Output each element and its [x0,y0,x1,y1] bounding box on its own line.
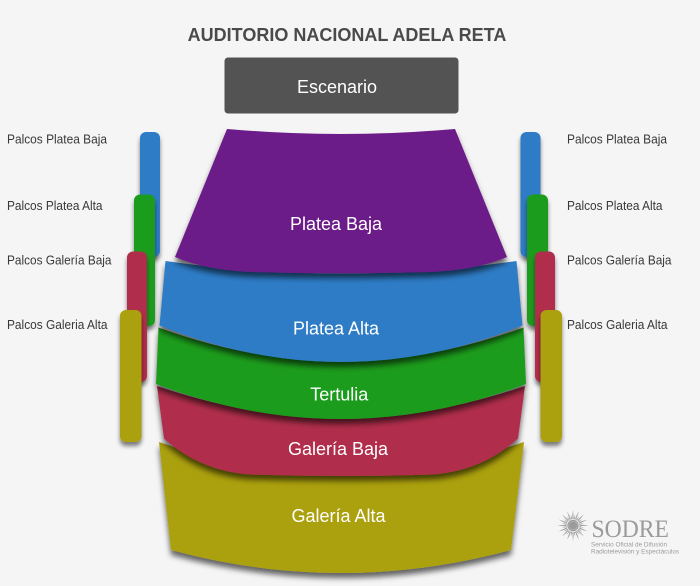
svg-text:AUDITORIO NACIONAL ADELA RETA: AUDITORIO NACIONAL ADELA RETA [188,25,507,45]
svg-text:Palcos Platea Alta: Palcos Platea Alta [567,198,663,213]
svg-text:Galería Baja: Galería Baja [288,439,389,459]
svg-text:Palcos Galeria Alta: Palcos Galeria Alta [567,317,668,332]
svg-text:SODRE: SODRE [592,516,670,543]
svg-text:Radiotelevisión y Espectáculos: Radiotelevisión y Espectáculos [591,549,679,556]
svg-text:Servicio Oficial de Difusión: Servicio Oficial de Difusión [591,542,667,549]
svg-text:Galería Alta: Galería Alta [291,506,386,526]
svg-text:Palcos Galería Baja: Palcos Galería Baja [7,253,112,268]
svg-text:Palcos Platea Baja: Palcos Platea Baja [567,131,668,146]
svg-text:Palcos Galería Baja: Palcos Galería Baja [567,253,672,268]
svg-text:Escenario: Escenario [297,77,377,97]
svg-text:Platea Alta: Platea Alta [293,319,380,339]
svg-text:Palcos Galeria Alta: Palcos Galeria Alta [7,317,108,332]
svg-text:Palcos Platea Alta: Palcos Platea Alta [7,198,103,213]
svg-text:Palcos Platea Baja: Palcos Platea Baja [7,131,108,146]
svg-text:Tertulia: Tertulia [310,385,369,405]
svg-text:Platea Baja: Platea Baja [290,214,383,234]
